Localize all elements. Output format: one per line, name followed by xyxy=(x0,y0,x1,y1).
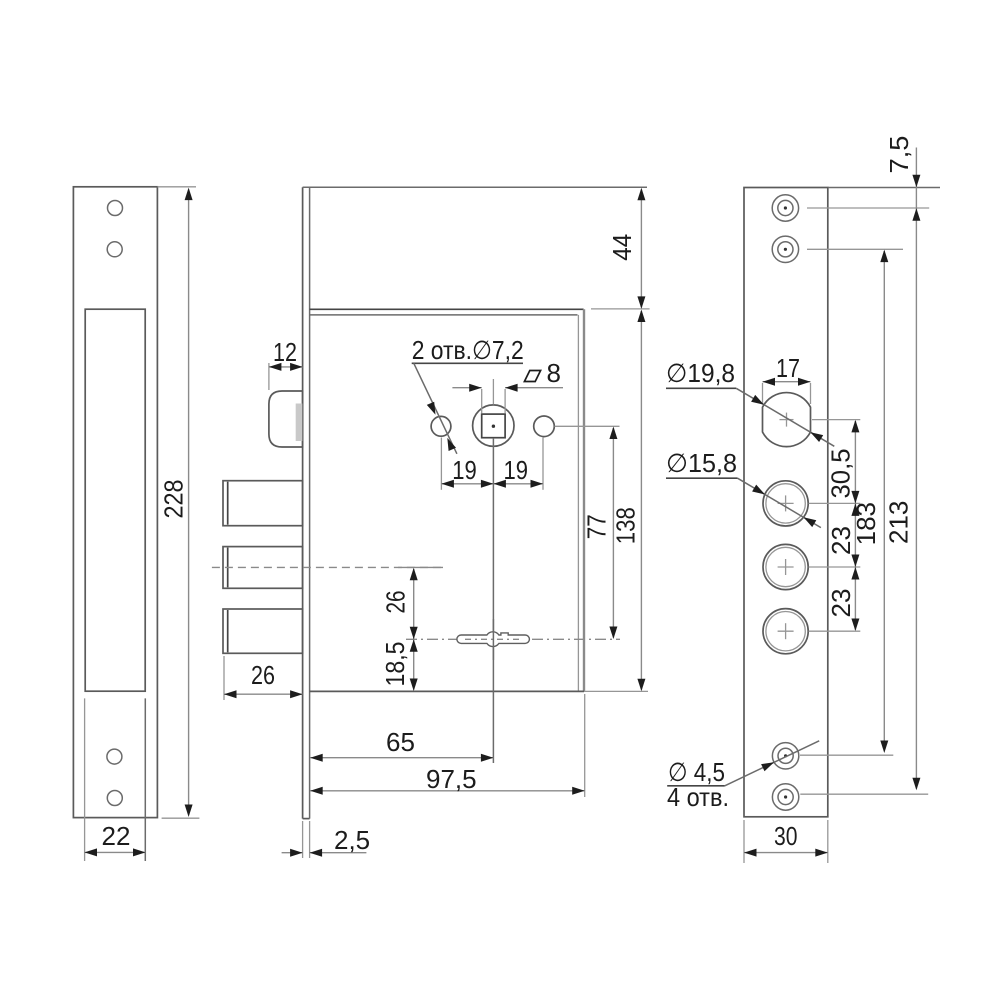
svg-text:44: 44 xyxy=(607,234,637,261)
svg-text:26: 26 xyxy=(251,660,275,690)
svg-text:30: 30 xyxy=(774,821,798,851)
svg-text:17: 17 xyxy=(776,353,800,383)
svg-text:∅15,8: ∅15,8 xyxy=(666,448,737,478)
svg-text:12: 12 xyxy=(273,337,297,367)
svg-text:22: 22 xyxy=(102,821,131,851)
svg-text:2,5: 2,5 xyxy=(334,825,370,855)
svg-text:138: 138 xyxy=(611,507,641,544)
svg-text:8: 8 xyxy=(547,358,561,388)
svg-text:19: 19 xyxy=(504,455,529,485)
svg-text:23: 23 xyxy=(826,589,856,618)
svg-text:18,5: 18,5 xyxy=(380,642,410,687)
svg-text:2 отв.∅7,2: 2 отв.∅7,2 xyxy=(412,335,524,365)
svg-text:97,5: 97,5 xyxy=(426,764,477,794)
svg-text:183: 183 xyxy=(851,502,881,545)
svg-text:19: 19 xyxy=(452,455,477,485)
svg-text:26: 26 xyxy=(380,591,410,614)
svg-text:7,5: 7,5 xyxy=(884,136,914,174)
svg-text:228: 228 xyxy=(158,480,188,519)
svg-text:30,5: 30,5 xyxy=(825,449,855,499)
svg-text:65: 65 xyxy=(386,727,415,757)
svg-text:213: 213 xyxy=(883,501,913,544)
svg-text:∅19,8: ∅19,8 xyxy=(666,358,735,388)
svg-text:77: 77 xyxy=(581,514,611,539)
svg-text:4 отв.: 4 отв. xyxy=(667,782,729,812)
